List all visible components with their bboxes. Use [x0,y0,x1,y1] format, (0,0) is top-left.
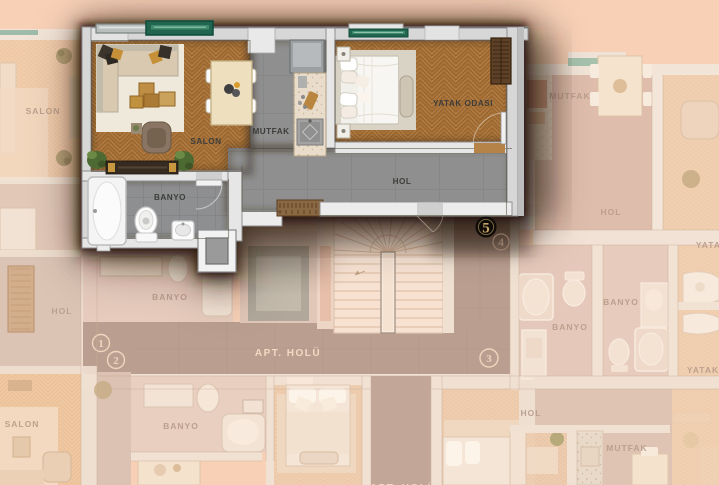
svg-text:BANYO: BANYO [154,193,186,202]
svg-text:4: 4 [498,235,504,249]
svg-text:5: 5 [482,221,490,237]
svg-text:MUTFAK: MUTFAK [252,127,289,136]
svg-text:HOL: HOL [393,177,412,186]
svg-text:YATAK ODASI: YATAK ODASI [433,99,493,108]
svg-text:SALON: SALON [190,137,221,146]
